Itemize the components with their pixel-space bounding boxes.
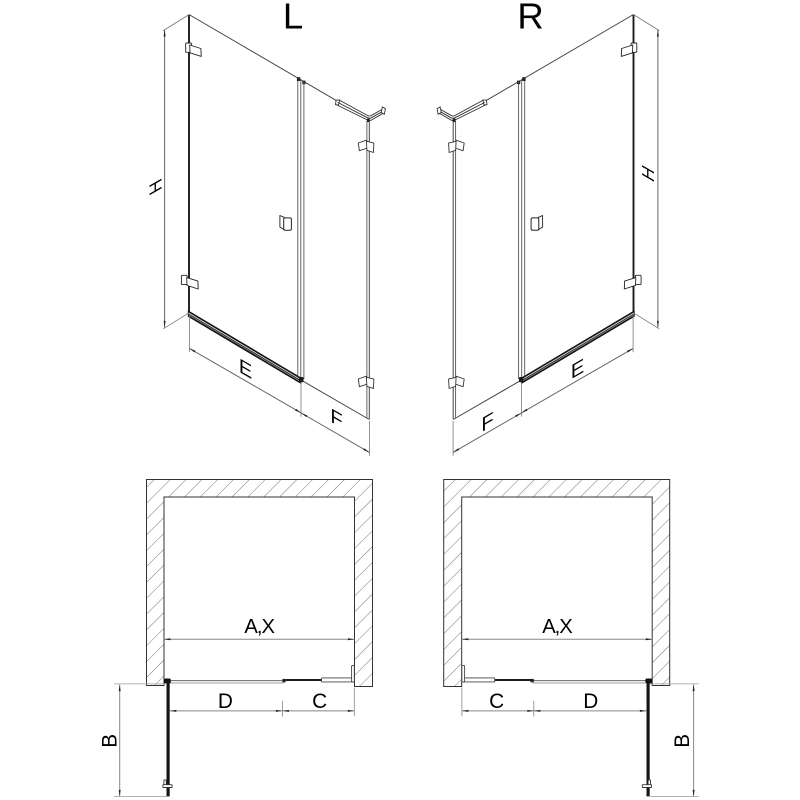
svg-text:D: D — [218, 690, 233, 713]
svg-text:C: C — [489, 690, 504, 713]
svg-text:D: D — [583, 690, 598, 713]
svg-text:R: R — [517, 0, 543, 37]
svg-text:L: L — [283, 0, 303, 37]
svg-text:A,X: A,X — [542, 616, 573, 638]
svg-text:A,X: A,X — [244, 616, 275, 638]
svg-text:C: C — [312, 690, 327, 713]
svg-text:B: B — [671, 734, 694, 748]
svg-text:B: B — [98, 734, 121, 748]
